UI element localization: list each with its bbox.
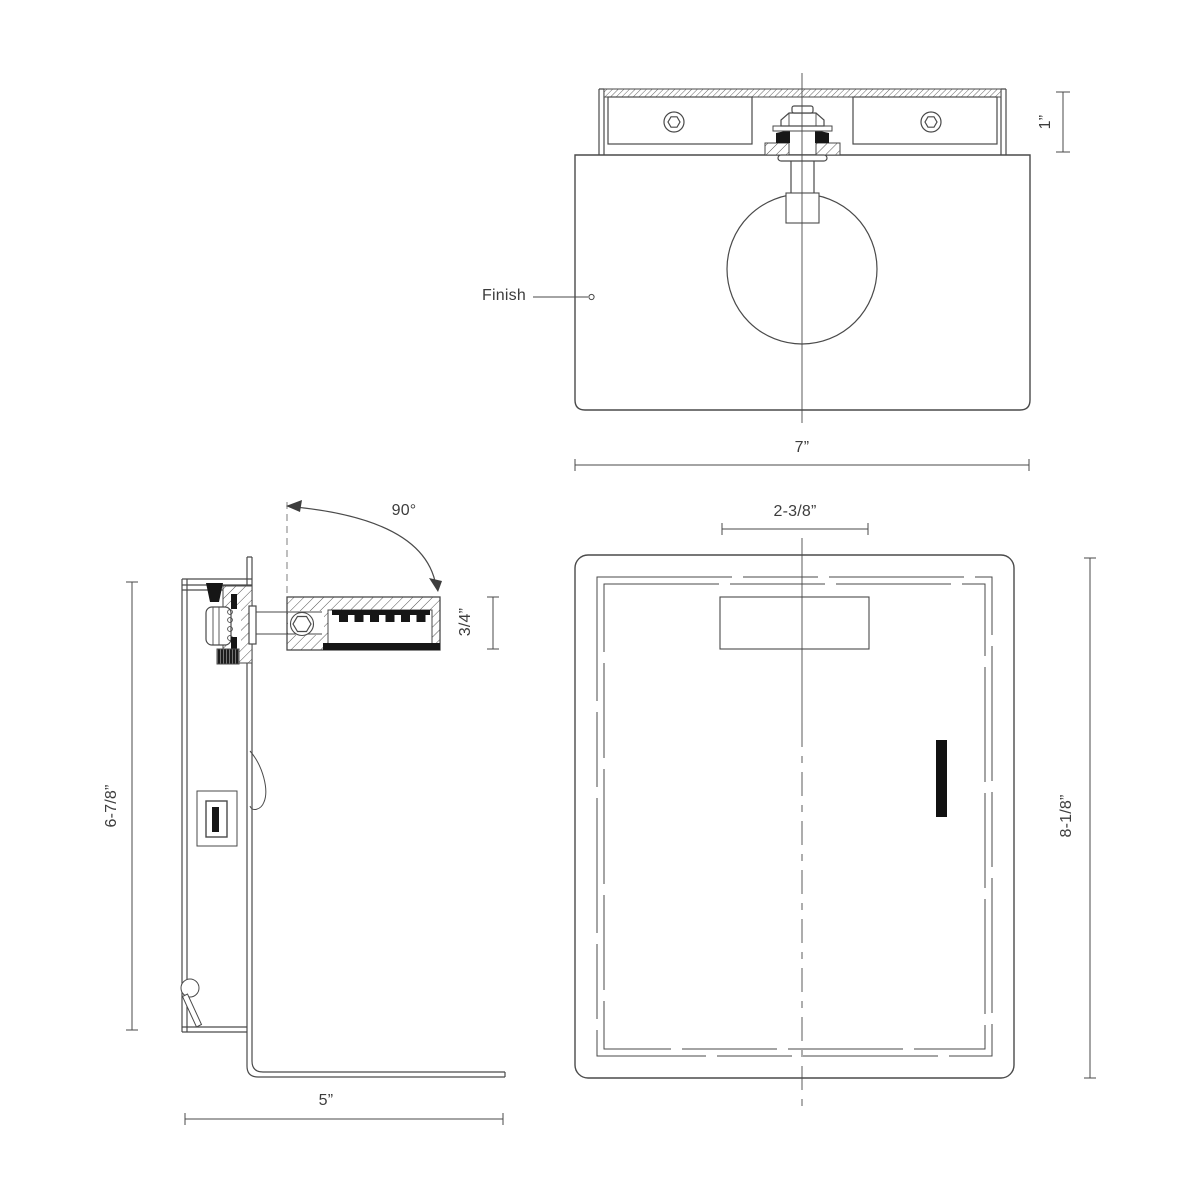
dim-bar-thickness: 3/4” [457,608,475,636]
back-view [575,523,1096,1110]
thumbscrew [217,649,239,664]
dim-swivel-angle: 90° [392,502,417,520]
pivot-bolt-assembly [206,583,256,664]
bracket-hatched-strip [604,89,1001,97]
swivel-light-bar [256,597,440,650]
side-view [126,500,505,1125]
mounting-screw-right [921,112,941,132]
dim-line-back-height [1084,558,1096,1078]
dim-line-side-height [126,582,138,1030]
dim-side-height: 6-7/8” [103,785,121,828]
dim-bracket-height: 1” [1037,115,1055,130]
swivel-annotation [286,500,442,597]
dim-line-bracket-height [1056,92,1070,152]
pivot-hex [291,613,314,636]
dim-line-knockout-width [722,523,868,535]
drawing-linework [0,0,1200,1200]
dim-line-depth [185,1113,503,1125]
cable-slot [936,740,947,817]
dim-line-width [575,459,1029,471]
technical-drawing-sheet: Finish 1” 7” 90° 3/4” 6-7/8” 5” 2-3/8” 8… [0,0,1200,1200]
led-strip [332,610,430,615]
receptacle-port [197,791,237,846]
dim-width: 7” [795,439,810,457]
finish-label: Finish [482,287,526,305]
dim-knockout-width: 2-3/8” [774,503,817,521]
dim-line-bar-thickness [487,597,499,649]
front-view [533,73,1070,471]
dim-back-height: 8-1/8” [1058,795,1076,838]
lens [323,643,440,650]
lamp-socket [786,193,819,223]
dim-depth: 5” [319,1092,334,1110]
junction-knockout [720,597,869,649]
mounting-screw-left [664,112,684,132]
ground-screw [181,979,202,1027]
